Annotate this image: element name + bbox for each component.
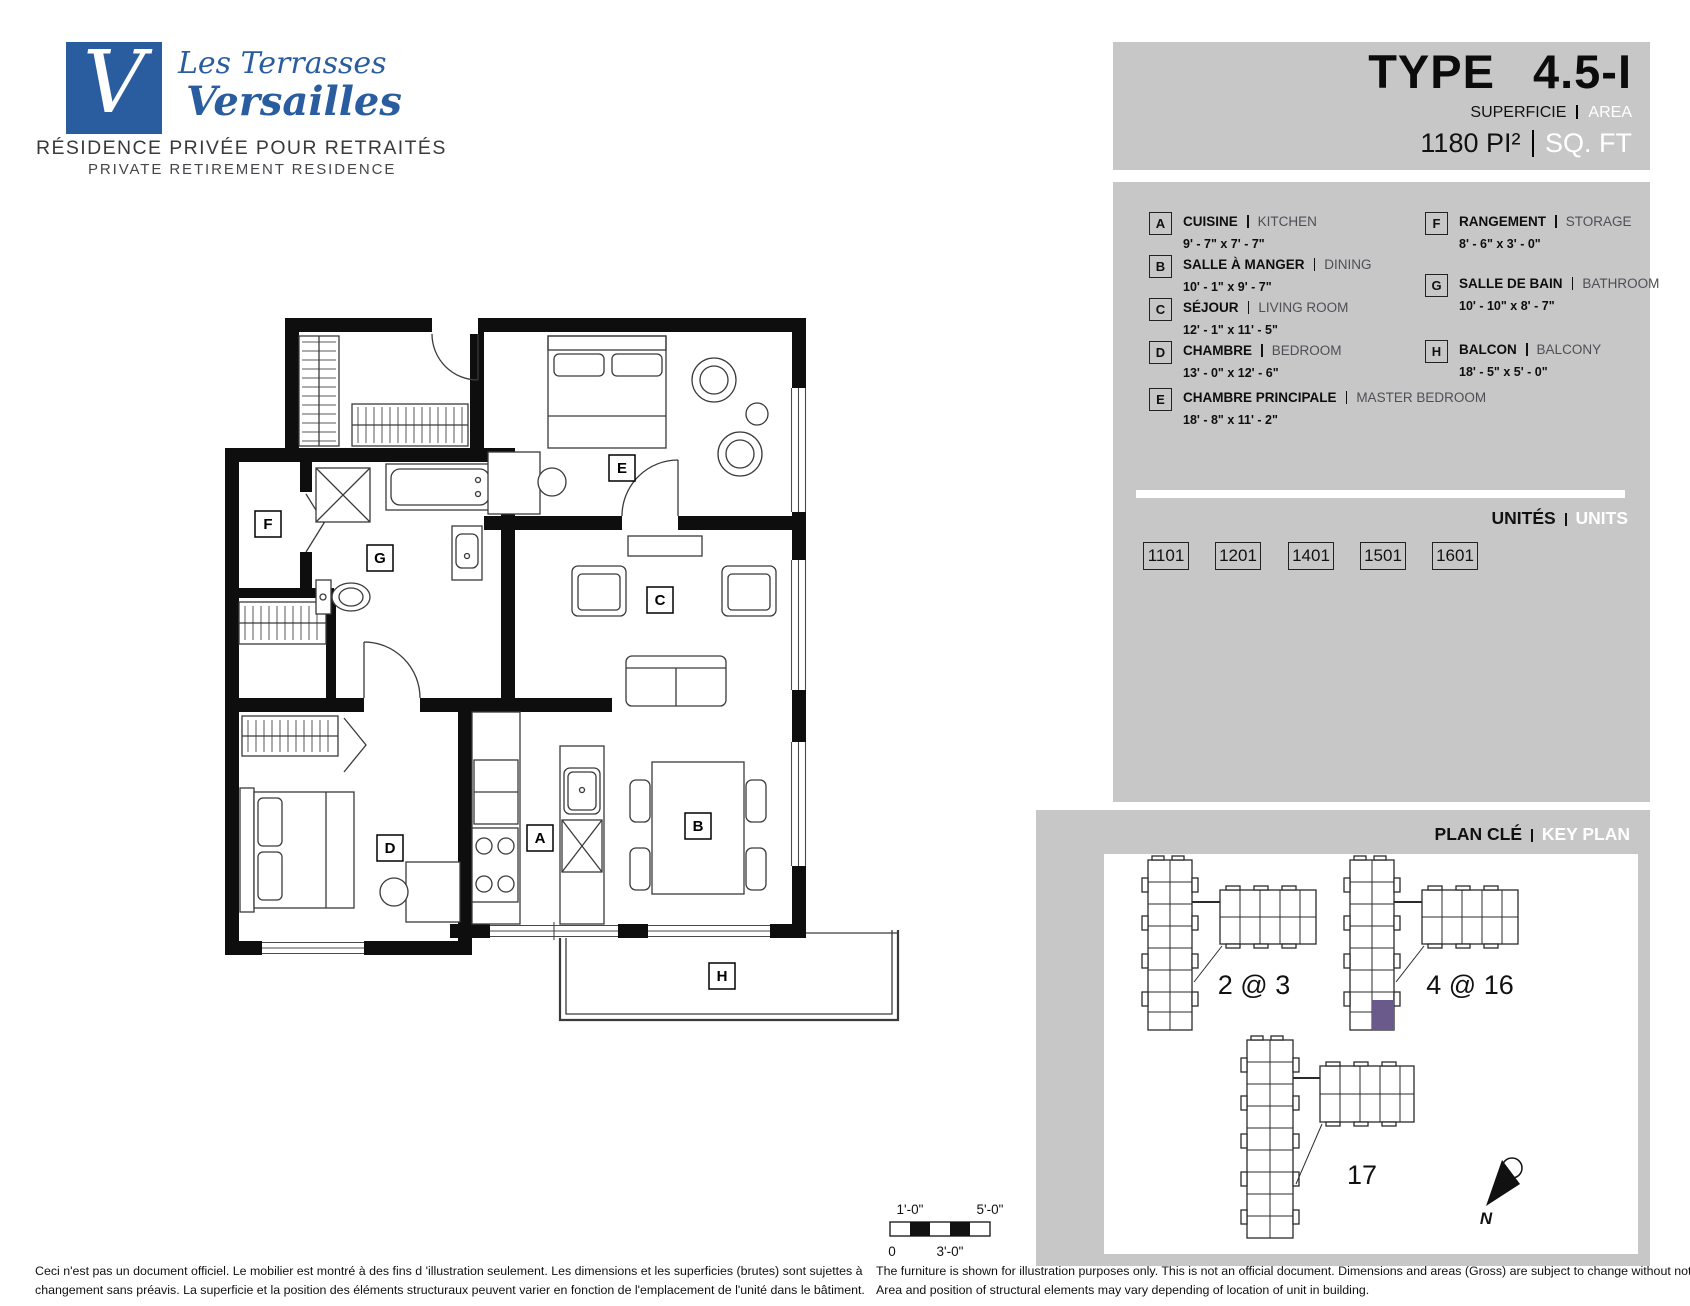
svg-text:G: G [374,550,386,567]
divider-bar [1531,829,1533,842]
unit-number-1601: 1601 [1432,542,1478,570]
divider-bar [1247,215,1249,228]
units-heading: UNITÉSUNITS [1492,508,1628,529]
side-table-icon [746,403,768,425]
svg-text:F: F [263,516,272,533]
key-plan-building-17: 17 [1241,1036,1414,1238]
room-dimensions: 18' - 5" x 5' - 0" [1459,365,1548,379]
room-dimensions: 10' - 1" x 9' - 7" [1183,280,1272,294]
room-label-living: C [647,587,673,613]
building-label: 2 @ 3 [1218,970,1290,1000]
divider-bar [1261,344,1263,357]
key-plan-panel: PLAN CLÉKEY PLAN 2 @ 3 [1036,810,1650,1266]
legend-key-box: D [1149,341,1172,364]
room-label-master-bedroom: E [609,455,635,481]
unit-number-1501: 1501 [1360,542,1406,570]
legend-key-box: H [1425,340,1448,363]
key-plan-building-2-3: 2 @ 3 [1142,856,1316,1030]
legend-item-dining: B SALLE À MANGERDINING 10' - 1" x 9' - 7… [1149,255,1409,303]
legend-item-storage: F RANGEMENTSTORAGE 8' - 6" x 3' - 0" [1425,212,1685,260]
brand-logo: V [66,42,162,134]
key-plan-map: 2 @ 3 4 @ 16 [1104,854,1638,1254]
area-value: 1180 PI²SQ. FT [1420,128,1632,159]
room-label-kitchen: A [527,825,553,851]
scale-bar: 1'-0" 5'-0" 0 3'-0" [862,1192,1022,1270]
bed-icon [240,788,254,912]
legend-item-balcony: H BALCONBALCONY 18' - 5" x 5' - 0" [1425,340,1685,388]
room-label-bathroom: G [367,545,393,571]
floor-plan-sheet: V Les Terrasses Versailles RÉSIDENCE PRI… [0,0,1690,1306]
chair-icon [630,848,650,890]
chair-icon [746,848,766,890]
floor-plan-drawing: A B C D E F G H [210,300,910,1045]
room-dimensions: 9' - 7" x 7' - 7" [1183,237,1265,251]
living-room-furniture [572,536,776,706]
console-icon [628,536,702,556]
svg-text:A: A [535,830,546,847]
bathroom-fixtures [316,464,500,614]
brand-name-line1: Les Terrasses [178,46,387,81]
divider-bar [1314,258,1316,271]
legend-key-box: E [1149,388,1172,411]
brand-name-line2: Versailles [186,78,402,125]
divider-bar [1248,301,1250,314]
bathtub-icon [386,464,500,510]
room-dimensions: 8' - 6" x 3' - 0" [1459,237,1541,251]
legend-key-box: F [1425,212,1448,235]
divider-bar [1532,130,1535,157]
room-label-dining: B [685,813,711,839]
closets [239,336,468,756]
scale-mark-5ft: 5'-0" [977,1202,1004,1217]
area-label: SUPERFICIEAREA [1470,104,1632,122]
legend-key-box: C [1149,298,1172,321]
legend-item-living-room: C SÉJOURLIVING ROOM 12' - 1" x 11' - 5" [1149,298,1409,346]
room-dimensions: 18' - 8" x 11' - 2" [1183,413,1278,427]
room-dimensions: 12' - 1" x 11' - 5" [1183,323,1278,337]
disclaimer-french: Ceci n'est pas un document officiel. Le … [35,1262,865,1300]
bed-icon [548,336,666,448]
bedroom-furniture [240,788,460,922]
divider-bar [1346,391,1348,404]
desk-icon [488,452,540,514]
room-label-bedroom: D [377,835,403,861]
brand-tagline-en: PRIVATE RETIREMENT RESIDENCE [88,161,396,178]
building-label: 4 @ 16 [1426,970,1513,1000]
key-plan-building-4-16: 4 @ 16 [1344,856,1518,1030]
desk-icon [406,862,460,922]
scale-mark-1ft: 1'-0" [897,1202,924,1217]
type-value: 4.5-I [1533,44,1632,99]
armchair-icon [692,358,736,402]
divider-bar [1555,215,1557,228]
kitchen-island-icon [560,746,604,924]
divider-bar [1572,277,1574,290]
chair-icon [380,878,408,906]
toilet-icon [316,580,331,614]
kitchen-fixtures [472,712,604,924]
type-label: TYPE [1368,44,1495,99]
svg-text:D: D [385,840,396,857]
building-label: 17 [1347,1160,1377,1190]
legend-item-master-bedroom: E CHAMBRE PRINCIPALEMASTER BEDROOM 18' -… [1149,388,1409,436]
divider-bar [1565,513,1567,526]
room-legend-panel: A CUISINEKITCHEN 9' - 7" x 7' - 7" B SAL… [1113,182,1650,802]
svg-text:H: H [717,968,728,985]
bifold-door-icon [344,718,366,772]
armchair-icon [718,432,762,476]
brand-monogram-icon: V [83,40,145,126]
disclaimer-english: The furniture is shown for illustration … [876,1262,1690,1300]
legend-key-box: B [1149,255,1172,278]
white-divider-rule [1136,490,1625,498]
legend-item-bathroom: G SALLE DE BAINBATHROOM 10' - 10" x 8' -… [1425,274,1685,322]
unit-number-1401: 1401 [1288,542,1334,570]
svg-text:E: E [617,460,627,477]
north-label: N [1480,1209,1493,1228]
master-bedroom-furniture [488,336,768,514]
room-dimensions: 13' - 0" x 12' - 6" [1183,366,1279,380]
north-arrow-icon: N [1480,1158,1522,1228]
scale-mark-0: 0 [888,1244,896,1259]
room-label-balcony: H [709,963,735,989]
unit-type-title: TYPE 4.5-I [1368,44,1632,99]
chair-icon [538,468,566,496]
svg-text:B: B [693,818,704,835]
divider-bar [1576,105,1578,119]
highlighted-unit [1372,1000,1394,1030]
type-header-panel: TYPE 4.5-I SUPERFICIEAREA 1180 PI²SQ. FT [1113,42,1650,170]
legend-item-kitchen: A CUISINEKITCHEN 9' - 7" x 7' - 7" [1149,212,1409,260]
scale-mark-3ft: 3'-0" [937,1244,964,1259]
unit-number-1201: 1201 [1215,542,1261,570]
legend-key-box: A [1149,212,1172,235]
legend-item-bedroom: D CHAMBREBEDROOM 13' - 0" x 12' - 6" [1149,341,1409,389]
key-plan-heading: PLAN CLÉKEY PLAN [1435,824,1630,845]
key-plan-map-area: 2 @ 3 4 @ 16 [1104,854,1638,1254]
legend-key-box: G [1425,274,1448,297]
divider-bar [1526,343,1528,356]
brand-tagline-fr: RÉSIDENCE PRIVÉE POUR RETRAITÉS [36,137,447,160]
chair-icon [630,780,650,822]
room-dimensions: 10' - 10" x 8' - 7" [1459,299,1555,313]
svg-text:C: C [655,592,666,609]
chair-icon [746,780,766,822]
room-label-storage: F [255,511,281,537]
unit-number-1101: 1101 [1143,542,1189,570]
